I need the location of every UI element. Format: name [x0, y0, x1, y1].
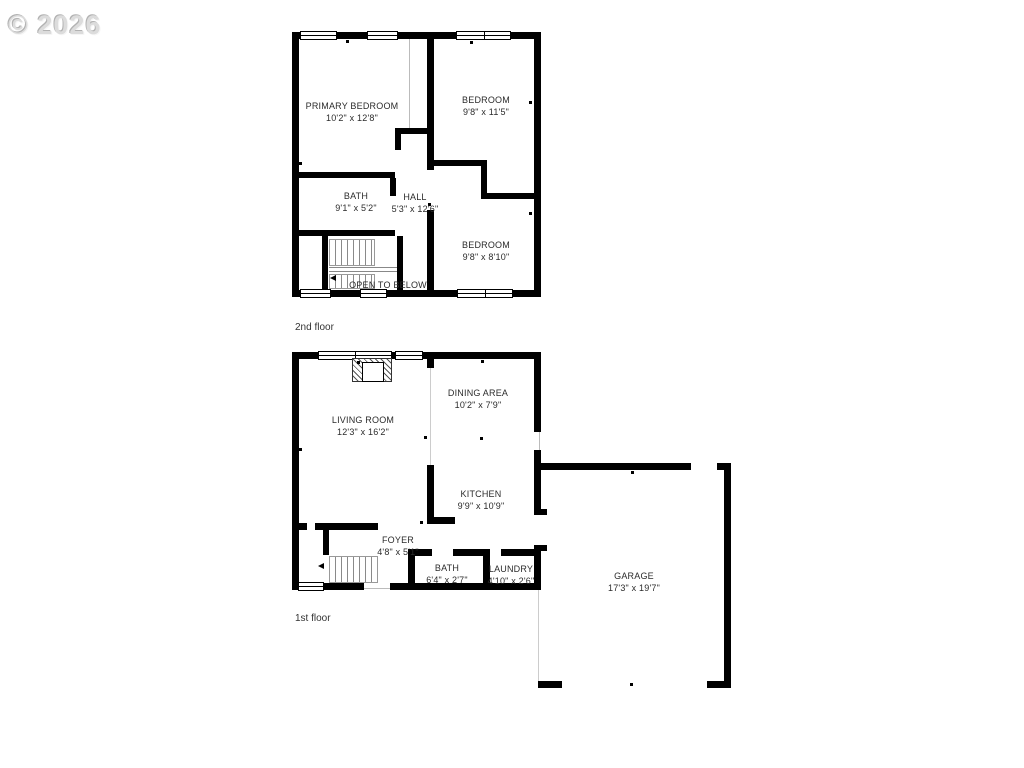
- room-name: LIVING ROOM: [303, 414, 423, 426]
- copyright-watermark: © 2026: [8, 10, 101, 41]
- wall: [707, 681, 731, 688]
- wall: [453, 549, 483, 556]
- room-name: BEDROOM: [436, 94, 536, 106]
- door-opening: [534, 515, 541, 545]
- wall-tick: [480, 437, 483, 440]
- stairs: [329, 556, 378, 583]
- room-name: KITCHEN: [431, 488, 531, 500]
- room-label-foyer: FOYER 4'8" x 5'1": [369, 534, 427, 558]
- room-label-living-room: LIVING ROOM 12'3" x 16'2": [303, 414, 423, 438]
- wall: [538, 681, 562, 688]
- wall-tick: [424, 436, 427, 439]
- wall: [427, 359, 434, 368]
- room-name: GARAGE: [584, 570, 684, 582]
- room-label-laundry: LAUNDRY 4'10" x 2'6": [474, 563, 548, 587]
- room-dimensions: 4'8" x 5'1": [369, 546, 427, 558]
- room-dimensions: 12'3" x 16'2": [303, 426, 423, 438]
- wall: [534, 352, 541, 432]
- wall: [501, 549, 534, 556]
- first-floor-caption: 1st floor: [295, 613, 331, 624]
- room-label-hall: HALL 5'3" x 12'6": [387, 191, 443, 215]
- stair-direction-arrow: [318, 563, 324, 569]
- room-dimensions: 17'3" x 19'7": [584, 582, 684, 594]
- room-name: HALL: [387, 191, 443, 203]
- wall: [541, 545, 547, 551]
- wall: [427, 517, 455, 524]
- wall: [323, 530, 329, 555]
- room-name: BATH: [412, 562, 482, 574]
- wall: [292, 352, 299, 590]
- window-symbol: [395, 351, 423, 360]
- room-label-bedroom-top: BEDROOM 9'8" x 11'5": [436, 94, 536, 118]
- room-label-garage: GARAGE 17'3" x 19'7": [584, 570, 684, 594]
- room-name: DINING AREA: [428, 387, 528, 399]
- room-dimensions: 9'9" x 10'9": [431, 500, 531, 512]
- room-dimensions: 9'8" x 11'5": [436, 106, 536, 118]
- room-label-bedroom-bottom: BEDROOM 9'8" x 8'10": [436, 239, 536, 263]
- wall-tick: [630, 683, 633, 686]
- room-label-primary-bedroom: PRIMARY BEDROOM 10'2" x 12'8": [290, 100, 414, 124]
- annotation-text: OPEN TO BELOW: [348, 279, 428, 291]
- room-dimensions: 10'2" x 12'8": [290, 112, 414, 124]
- room-name: FOYER: [369, 534, 427, 546]
- fireplace-firebox: [362, 362, 384, 382]
- room-dimensions: 9'8" x 8'10": [436, 251, 536, 263]
- second-floor-caption: 2nd floor: [295, 322, 334, 333]
- wall-tick: [631, 471, 634, 474]
- room-dimensions: 5'3" x 12'6": [387, 203, 443, 215]
- room-dimensions: 4'10" x 2'6": [474, 575, 548, 587]
- wall-tick: [481, 360, 484, 363]
- room-name: PRIMARY BEDROOM: [290, 100, 414, 112]
- opening-line: [430, 368, 431, 465]
- wall-tick: [299, 448, 302, 451]
- wall: [541, 509, 547, 515]
- room-label-kitchen: KITCHEN 9'9" x 10'9": [431, 488, 531, 512]
- wall-tick: [420, 521, 423, 524]
- room-label-bath-1st: BATH 6'4" x 2'7": [412, 562, 482, 586]
- wall: [541, 463, 691, 470]
- wall-tick: [724, 575, 727, 578]
- room-dimensions: 6'4" x 2'7": [412, 574, 482, 586]
- room-name: LAUNDRY: [474, 563, 548, 575]
- room-name: BEDROOM: [436, 239, 536, 251]
- room-dimensions: 10'2" x 7'9": [428, 399, 528, 411]
- garage-side-line: [538, 590, 539, 681]
- wall: [299, 523, 307, 530]
- window-symbol: [298, 582, 324, 591]
- opening-line: [539, 432, 540, 450]
- door-threshold-line: [364, 588, 390, 589]
- open-to-below-label: OPEN TO BELOW: [348, 279, 428, 291]
- wall: [315, 523, 378, 530]
- room-label-dining-area: DINING AREA 10'2" x 7'9": [428, 387, 528, 411]
- wall-tick: [357, 361, 360, 364]
